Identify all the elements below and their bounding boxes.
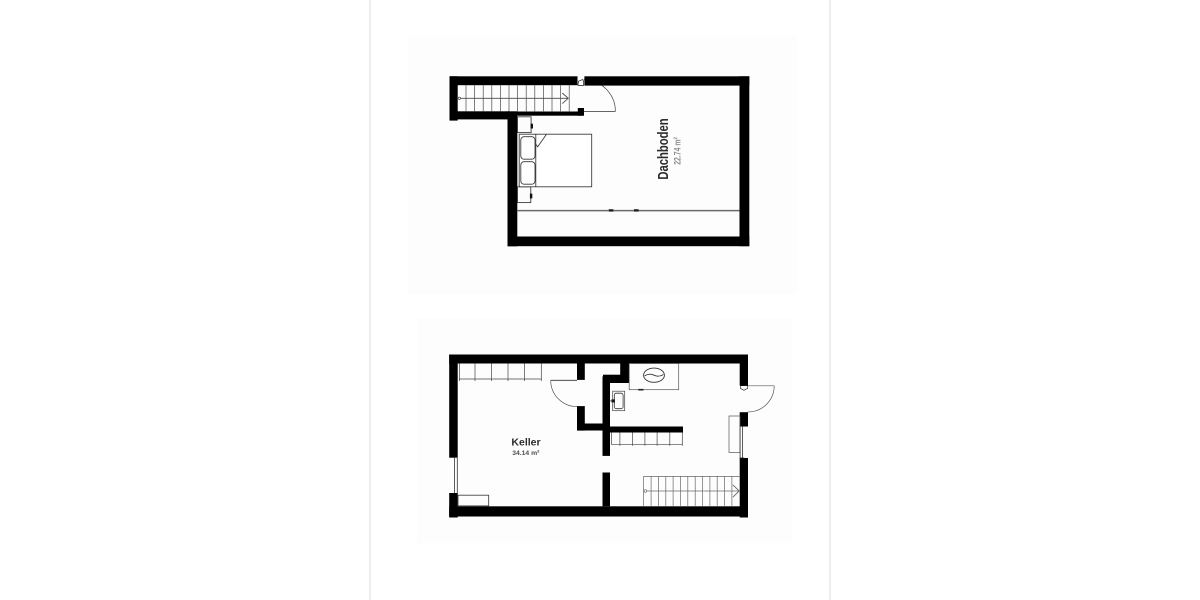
svg-text:Dachboden: Dachboden — [655, 118, 672, 179]
svg-text:22.74 m²: 22.74 m² — [673, 137, 683, 165]
svg-text:34.14 m²: 34.14 m² — [512, 450, 540, 457]
svg-text:Keller: Keller — [511, 437, 540, 449]
